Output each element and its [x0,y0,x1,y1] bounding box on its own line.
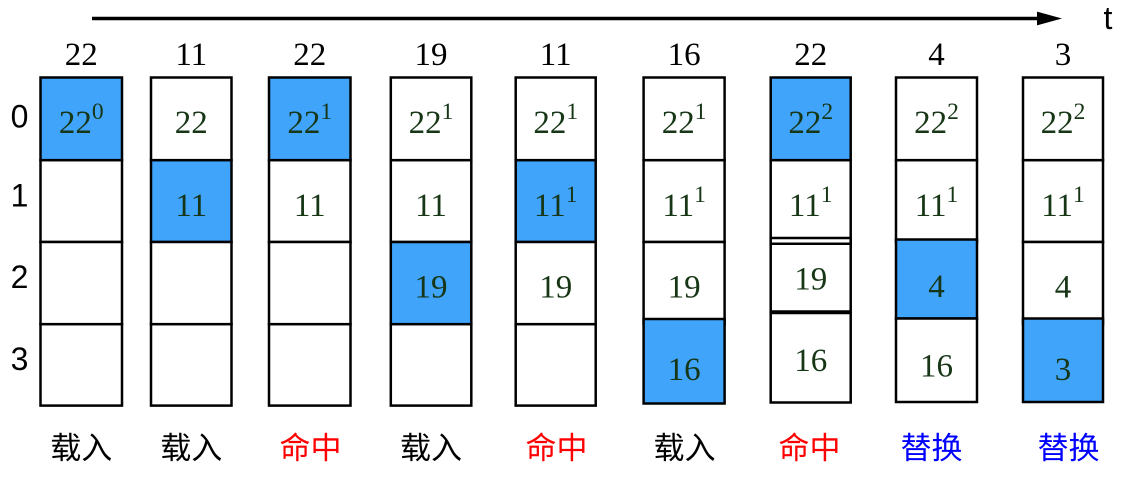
svg-text:2: 2 [11,259,29,295]
svg-text:16: 16 [920,349,953,385]
svg-text:19: 19 [539,270,572,306]
svg-text:1: 1 [11,178,29,214]
svg-text:4: 4 [928,269,945,305]
svg-text:11: 11 [175,37,207,73]
svg-text:11: 11 [415,188,447,224]
svg-text:3: 3 [11,341,29,377]
svg-text:22: 22 [293,37,326,73]
svg-text:11: 11 [540,37,572,73]
svg-text:4: 4 [928,37,945,73]
svg-text:19: 19 [415,37,448,73]
svg-text:19: 19 [415,270,448,306]
svg-text:4: 4 [1055,270,1072,306]
svg-text:16: 16 [668,352,701,388]
svg-text:3: 3 [1055,352,1072,388]
svg-text:16: 16 [668,37,701,73]
svg-text:3: 3 [1055,37,1072,73]
svg-text:11: 11 [294,188,326,224]
svg-text:22: 22 [65,37,98,73]
svg-text:22: 22 [175,105,208,141]
svg-text:t: t [1104,0,1113,36]
svg-text:11: 11 [175,188,207,224]
svg-text:16: 16 [794,343,827,379]
svg-text:19: 19 [668,270,701,306]
svg-text:19: 19 [794,262,827,298]
svg-text:0: 0 [11,98,29,134]
svg-text:22: 22 [794,37,827,73]
